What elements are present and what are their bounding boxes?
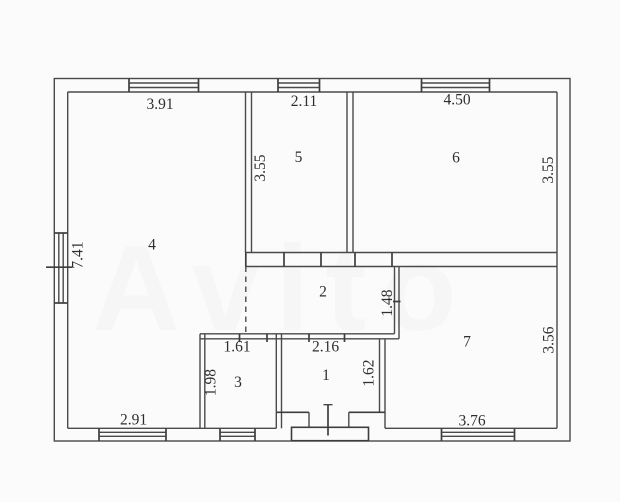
svg-text:4: 4 xyxy=(148,237,156,254)
svg-text:1.48: 1.48 xyxy=(379,289,396,316)
svg-text:7: 7 xyxy=(463,334,471,351)
svg-text:2.16: 2.16 xyxy=(312,339,339,356)
svg-text:2.11: 2.11 xyxy=(291,93,318,110)
svg-text:3.76: 3.76 xyxy=(458,413,485,430)
svg-text:7.41: 7.41 xyxy=(70,241,87,268)
svg-text:3: 3 xyxy=(234,374,242,391)
svg-text:4.50: 4.50 xyxy=(443,92,470,109)
svg-text:2.91: 2.91 xyxy=(120,412,147,429)
svg-text:1.61: 1.61 xyxy=(223,339,250,356)
svg-text:1.98: 1.98 xyxy=(203,369,220,396)
svg-text:3.56: 3.56 xyxy=(541,326,558,353)
svg-text:1: 1 xyxy=(322,367,330,384)
svg-text:3.55: 3.55 xyxy=(252,154,269,181)
svg-text:5: 5 xyxy=(295,149,303,166)
svg-text:3.55: 3.55 xyxy=(540,156,557,183)
svg-text:3.91: 3.91 xyxy=(146,96,173,113)
svg-text:6: 6 xyxy=(452,150,460,167)
svg-text:2: 2 xyxy=(319,284,327,301)
svg-text:1.62: 1.62 xyxy=(361,359,378,386)
